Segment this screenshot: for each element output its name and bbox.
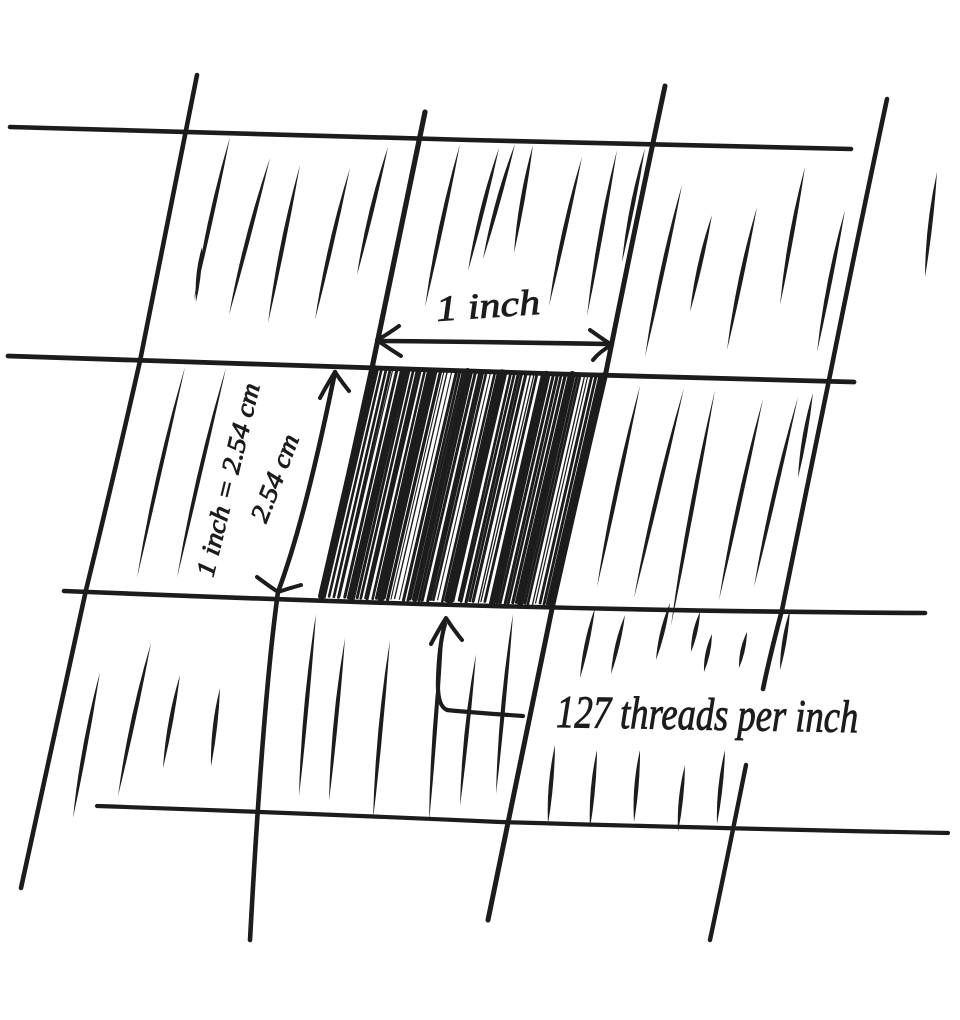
svg-text:1 inch = 2.54 cm: 1 inch = 2.54 cm — [191, 380, 266, 579]
svg-text:127 threads per inch: 127 threads per inch — [556, 686, 859, 742]
svg-text:2.54 cm: 2.54 cm — [245, 430, 305, 526]
svg-text:1 inch: 1 inch — [435, 282, 542, 329]
